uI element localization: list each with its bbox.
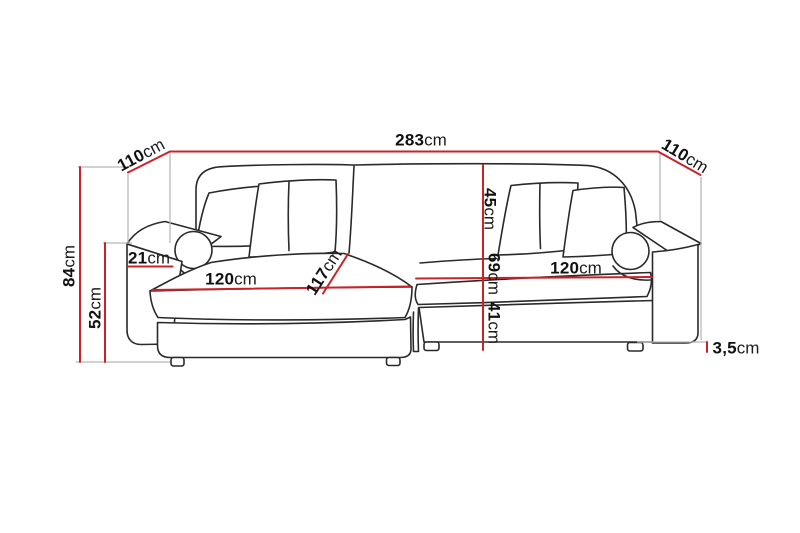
dim-base-height-label: 41cm [486,302,503,344]
foot-front-left [171,358,184,367]
pillow-right-inner-crease [540,184,541,249]
diagram-canvas [0,0,800,533]
sofa-illustration [127,164,701,366]
dim-backrest-height-label: 45cm [482,188,499,230]
chaise-base [158,317,412,358]
foot-right-outer [628,343,644,352]
right-bolster-cushion [612,233,649,270]
dim-total-height-label: 84cm [61,245,78,287]
right-base [419,301,653,343]
dim-leg-height-label: 3,5cm [713,340,760,357]
base-junction [413,308,418,352]
dim-seat-width-right-label: 120cm [550,260,602,277]
foot-right-inner [424,342,439,351]
foot-front-mid [387,358,401,366]
pillow-left-inner [249,180,337,257]
dim-total-width-label: 283cm [395,132,447,149]
dim-armrest-height-label: 52cm [87,287,104,329]
sofa-back-seam [349,166,354,253]
dim-seat-width-left-label: 120cm [205,271,257,288]
dim-seat-height-label: 69cm [486,253,503,295]
right-armrest-front-face [653,245,699,344]
pillow-left-inner-crease [288,182,289,251]
sofa-dimension-diagram: 283cm 110cm 110cm 84cm 52cm 21cm 120cm 1… [0,0,800,533]
dim-armrest-width-label: 21cm [128,250,170,267]
